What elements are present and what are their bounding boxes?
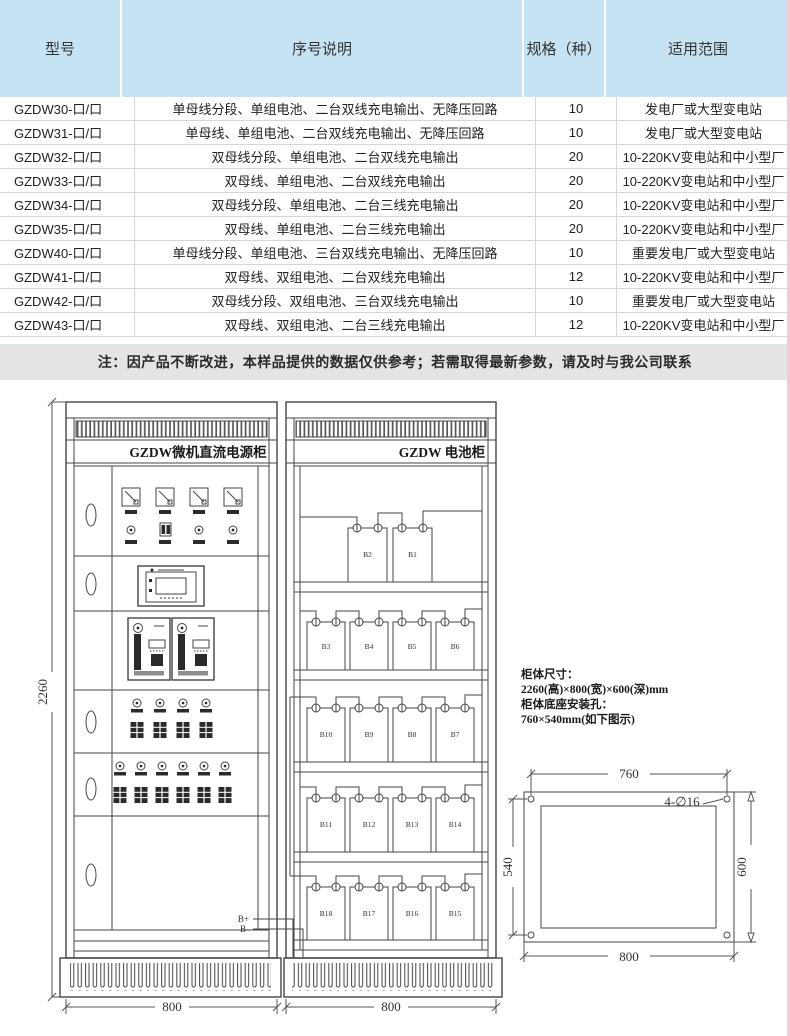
cell-model: GZDW33-口/口: [0, 169, 135, 192]
cell-spec: 20: [536, 169, 617, 192]
model-spec-table: 型号 序号说明 规格（种） 适用范围 GZDW30-口/口 单母线分段、单组电池…: [0, 0, 790, 337]
cell-range: 重要发电厂或大型变电站: [617, 289, 790, 312]
cell-range: 10-220KV变电站和中小型厂: [617, 193, 790, 216]
svg-text:B8: B8: [408, 730, 417, 739]
charger-module-icon: [128, 618, 170, 680]
cell-model: GZDW40-口/口: [0, 241, 135, 264]
mounting-left-label: 540: [500, 857, 515, 877]
battery-cell: B5: [393, 615, 431, 670]
battery-cell: B2: [348, 521, 387, 582]
battery-cell: B3: [307, 615, 345, 670]
header-range: 适用范围: [606, 0, 790, 97]
battery-cell: B12: [350, 791, 388, 852]
cell-range: 10-220KV变电站和中小型厂: [617, 217, 790, 240]
table-row: GZDW31-口/口 单母线、单组电池、二台双线充电输出、无降压回路 10 发电…: [0, 120, 790, 144]
cell-spec: 12: [536, 265, 617, 288]
cell-spec: 10: [536, 289, 617, 312]
svg-text:B11: B11: [320, 820, 332, 829]
svg-text:B13: B13: [406, 820, 419, 829]
mounting-top-label: 760: [619, 766, 639, 781]
dimension-power-width: 800: [62, 999, 281, 1014]
table-row: GZDW30-口/口 单母线分段、单组电池、二台双线充电输出、无降压回路 10 …: [0, 97, 790, 120]
cell-model: GZDW30-口/口: [0, 97, 135, 120]
table-header-row: 型号 序号说明 规格（种） 适用范围: [0, 0, 790, 97]
vent-grille-icon: [76, 421, 267, 437]
cell-desc: 单母线分段、单组电池、二台双线充电输出、无降压回路: [135, 97, 536, 120]
cell-model: GZDW42-口/口: [0, 289, 135, 312]
svg-text:B7: B7: [451, 730, 460, 739]
cabinet-specs: 柜体尺寸： 2260(高)×800(宽)×600(深)mm 柜体底座安装孔： 7…: [521, 668, 781, 728]
cell-model: GZDW34-口/口: [0, 193, 135, 216]
svg-text:B10: B10: [320, 730, 333, 739]
cell-model: GZDW35-口/口: [0, 217, 135, 240]
cell-range: 10-220KV变电站和中小型厂: [617, 145, 790, 168]
cell-spec: 20: [536, 145, 617, 168]
svg-text:B16: B16: [406, 909, 419, 918]
header-spec: 规格（种）: [524, 0, 606, 97]
svg-text:B2: B2: [363, 550, 372, 559]
svg-text:B5: B5: [408, 642, 417, 651]
battery-cell: B1: [393, 521, 432, 582]
cell-range: 10-220KV变电站和中小型厂: [617, 169, 790, 192]
battery-cell: B11: [307, 791, 345, 852]
specs-holes-title: 柜体底座安装孔：: [521, 698, 781, 713]
cell-spec: 10: [536, 97, 617, 120]
battery-cell: B13: [393, 791, 431, 852]
table-row: GZDW35-口/口 双母线、单组电池、二台三线充电输出 20 10-220KV…: [0, 216, 790, 240]
cell-spec: 20: [536, 217, 617, 240]
note-text: 注：因产品不断改进，本样品提供的数据仅供参考；若需取得最新参数，请及时与我公司联…: [98, 352, 693, 372]
battery-cell: B10: [307, 701, 345, 762]
base-vents-icon: [292, 963, 494, 991]
battery-cell: B7: [436, 701, 474, 762]
table-row: GZDW32-口/口 双母线分段、单组电池、二台双线充电输出 20 10-220…: [0, 144, 790, 168]
battery-cabinet: GZDW 电池柜: [284, 402, 502, 997]
header-model: 型号: [0, 0, 122, 97]
cell-range: 重要发电厂或大型变电站: [617, 241, 790, 264]
specs-dimensions: 2260(高)×800(宽)×600(深)mm: [521, 683, 781, 698]
cell-model: GZDW32-口/口: [0, 145, 135, 168]
power-cabinet-title: GZDW微机直流电源柜: [129, 444, 267, 460]
cell-desc: 双母线分段、单组电池、二台三线充电输出: [135, 193, 536, 216]
table-row: GZDW34-口/口 双母线分段、单组电池、二台三线充电输出 20 10-220…: [0, 192, 790, 216]
svg-text:B18: B18: [320, 909, 333, 918]
svg-text:B14: B14: [449, 820, 462, 829]
breaker-row-icon: [114, 762, 232, 803]
battery-cell: B6: [436, 615, 474, 670]
table-body: GZDW30-口/口 单母线分段、单组电池、二台双线充电输出、无降压回路 10 …: [0, 97, 790, 337]
cell-model: GZDW41-口/口: [0, 265, 135, 288]
svg-text:B6: B6: [451, 642, 460, 651]
holes-callout-label: 4-∅16: [664, 794, 700, 809]
battery-cell: B15: [436, 880, 474, 940]
specs-holes-value: 760×540mm(如下图示): [521, 713, 781, 728]
panel-indicators-icon: [125, 523, 239, 544]
table-row: GZDW42-口/口 双母线分段、双组电池、三台双线充电输出 10 重要发电厂或…: [0, 288, 790, 312]
mounting-diagram: 760 540 600 800 4-∅16: [500, 765, 756, 964]
base-vents-icon: [70, 963, 271, 991]
cell-desc: 双母线、单组电池、二台双线充电输出: [135, 169, 536, 192]
note-bar: 注：因产品不断改进，本样品提供的数据仅供参考；若需取得最新参数，请及时与我公司联…: [0, 344, 790, 380]
mounting-bottom-label: 800: [619, 949, 639, 964]
battery-cell: B4: [350, 615, 388, 670]
power-width-label: 800: [162, 999, 182, 1014]
table-row: GZDW33-口/口 双母线、单组电池、二台双线充电输出 20 10-220KV…: [0, 168, 790, 192]
battery-cell: B16: [393, 880, 431, 940]
mounting-right-label: 600: [734, 857, 749, 877]
battery-cell: B14: [436, 791, 474, 852]
cell-range: 发电厂或大型变电站: [617, 97, 790, 120]
cell-desc: 双母线、双组电池、二台双线充电输出: [135, 265, 536, 288]
svg-text:B9: B9: [365, 730, 374, 739]
cell-desc: 单母线分段、单组电池、三台双线充电输出、无降压回路: [135, 241, 536, 264]
cell-spec: 20: [536, 193, 617, 216]
door-handle-icon: [86, 504, 96, 886]
svg-text:B3: B3: [322, 642, 331, 651]
header-description: 序号说明: [122, 0, 524, 97]
cell-spec: 10: [536, 241, 617, 264]
monitor-unit-icon: [138, 566, 204, 606]
battery-cell: B9: [350, 701, 388, 762]
svg-text:B1: B1: [408, 550, 417, 559]
cell-spec: 10: [536, 121, 617, 144]
svg-text:B17: B17: [363, 909, 376, 918]
power-cabinet: GZDW微机直流电源柜: [60, 402, 303, 997]
cell-model: GZDW31-口/口: [0, 121, 135, 144]
svg-text:B4: B4: [365, 642, 374, 651]
height-dim-label: 2260: [35, 679, 50, 705]
cell-range: 10-220KV变电站和中小型厂: [617, 313, 790, 336]
vent-grille-icon: [296, 421, 486, 437]
svg-text:B12: B12: [363, 820, 376, 829]
battery-width-label: 800: [381, 999, 401, 1014]
cell-desc: 双母线分段、双组电池、三台双线充电输出: [135, 289, 536, 312]
cell-range: 发电厂或大型变电站: [617, 121, 790, 144]
battery-cabinet-title: GZDW 电池柜: [399, 444, 486, 460]
charger-module-icon: [172, 618, 214, 680]
cell-desc: 双母线分段、单组电池、二台双线充电输出: [135, 145, 536, 168]
battery-cell: B8: [393, 701, 431, 762]
svg-text:B15: B15: [449, 909, 462, 918]
cell-range: 10-220KV变电站和中小型厂: [617, 265, 790, 288]
table-row: GZDW40-口/口 单母线分段、单组电池、三台双线充电输出、无降压回路 10 …: [0, 240, 790, 264]
table-row: GZDW43-口/口 双母线、双组电池、二台三线充电输出 12 10-220KV…: [0, 312, 790, 336]
cell-desc: 双母线、双组电池、二台三线充电输出: [135, 313, 536, 336]
specs-title: 柜体尺寸：: [521, 668, 781, 683]
cell-desc: 双母线、单组电池、二台三线充电输出: [135, 217, 536, 240]
breaker-row-icon: [131, 699, 213, 738]
dimension-height: 2260: [35, 398, 66, 1001]
panel-meters-icon: [122, 488, 242, 514]
bminus-label: B-: [240, 924, 249, 934]
bplus-label: B+: [238, 914, 249, 924]
battery-cell: B17: [350, 880, 388, 940]
battery-cell: B18: [307, 880, 345, 940]
cell-spec: 12: [536, 313, 617, 336]
dimension-battery-width: 800: [282, 999, 500, 1014]
cell-desc: 单母线、单组电池、二台双线充电输出、无降压回路: [135, 121, 536, 144]
cell-model: GZDW43-口/口: [0, 313, 135, 336]
table-row: GZDW41-口/口 双母线、双组电池、二台双线充电输出 12 10-220KV…: [0, 264, 790, 288]
